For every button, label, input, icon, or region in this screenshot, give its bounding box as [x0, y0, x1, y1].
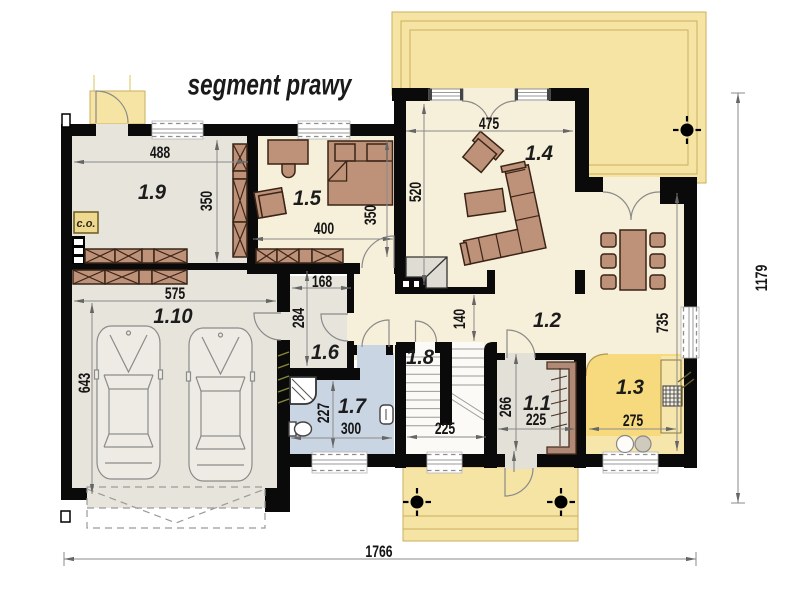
svg-text:segment prawy: segment prawy	[188, 67, 353, 101]
svg-text:1.8: 1.8	[406, 345, 434, 369]
svg-text:400: 400	[314, 220, 334, 238]
svg-text:1.7: 1.7	[338, 394, 367, 418]
svg-text:488: 488	[150, 144, 170, 162]
svg-text:1766: 1766	[365, 543, 392, 561]
svg-text:275: 275	[623, 412, 643, 430]
svg-text:1.1: 1.1	[523, 391, 551, 415]
svg-text:225: 225	[435, 420, 455, 438]
svg-text:266: 266	[497, 397, 515, 417]
svg-text:168: 168	[312, 273, 332, 291]
svg-text:1.6: 1.6	[311, 340, 339, 364]
svg-text:1.4: 1.4	[525, 141, 553, 165]
svg-text:475: 475	[479, 115, 499, 133]
svg-text:c.o.: c.o.	[77, 218, 96, 230]
svg-text:350: 350	[198, 191, 216, 211]
svg-text:350: 350	[362, 205, 380, 225]
svg-text:1.10: 1.10	[153, 304, 193, 328]
svg-text:1.9: 1.9	[138, 180, 166, 204]
svg-text:284: 284	[290, 308, 308, 328]
svg-text:575: 575	[165, 285, 185, 303]
svg-text:1.5: 1.5	[293, 186, 321, 210]
svg-text:140: 140	[451, 309, 469, 329]
svg-text:1179: 1179	[753, 265, 771, 291]
svg-text:227: 227	[315, 403, 333, 423]
svg-text:300: 300	[341, 420, 361, 438]
svg-text:520: 520	[407, 182, 425, 202]
svg-text:643: 643	[76, 373, 94, 393]
svg-text:1.3: 1.3	[616, 375, 644, 399]
svg-text:735: 735	[654, 313, 672, 333]
svg-text:1.2: 1.2	[533, 308, 561, 332]
